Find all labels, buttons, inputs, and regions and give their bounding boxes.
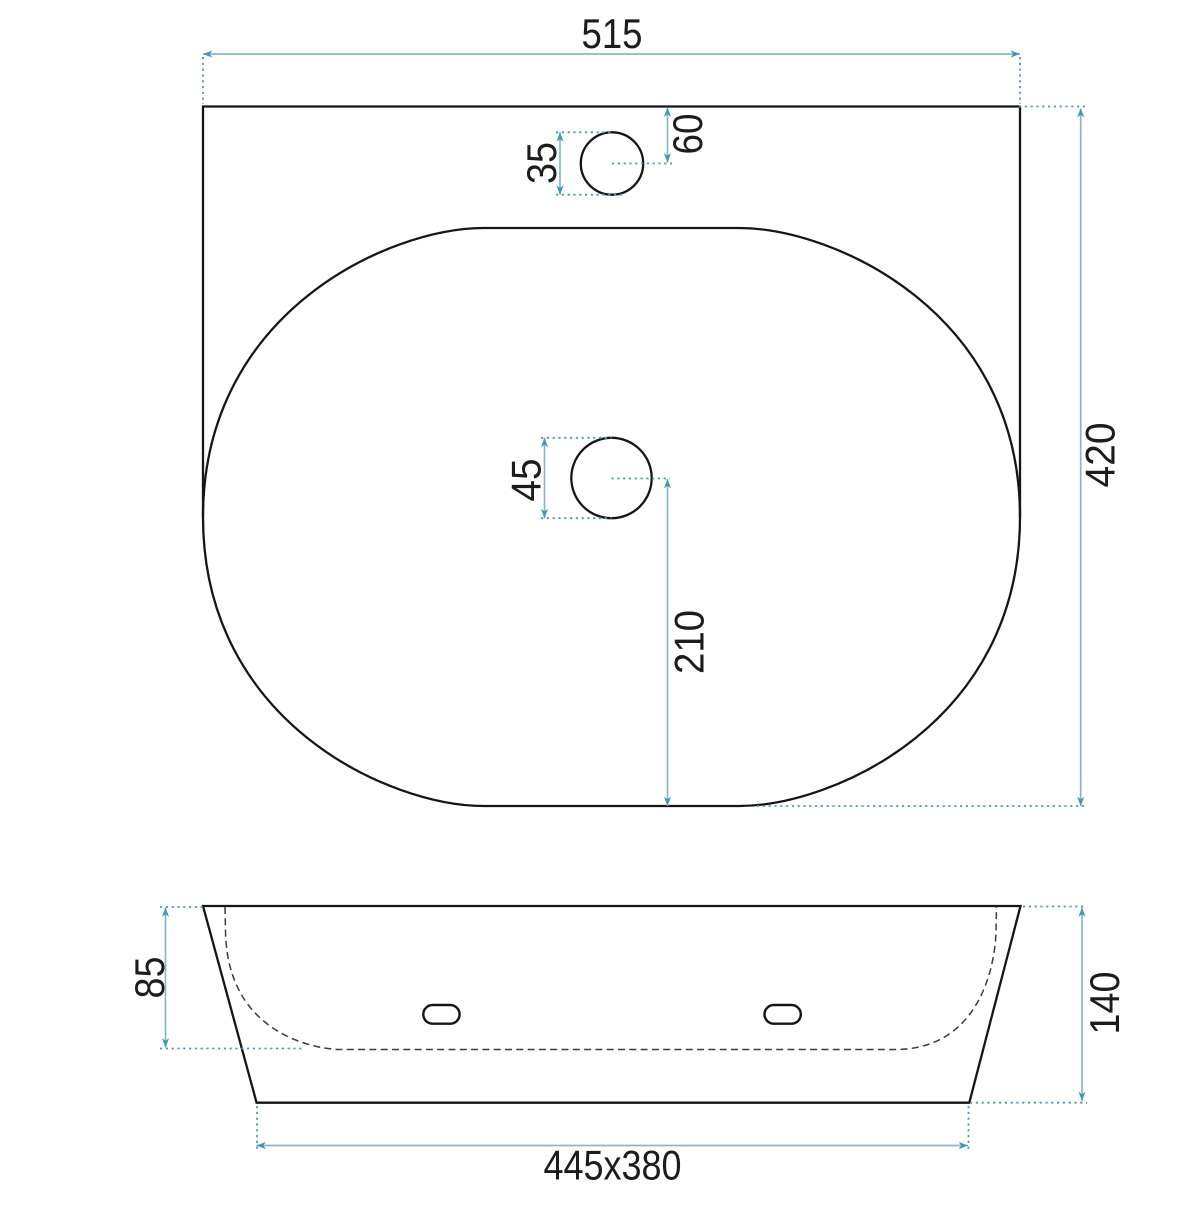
svg-text:60: 60 xyxy=(664,114,711,155)
svg-text:515: 515 xyxy=(582,10,643,57)
svg-text:85: 85 xyxy=(126,957,173,999)
svg-text:445x380: 445x380 xyxy=(544,1142,682,1189)
svg-text:35: 35 xyxy=(518,142,565,184)
svg-text:420: 420 xyxy=(1077,423,1124,488)
svg-text:140: 140 xyxy=(1081,972,1128,1035)
svg-text:45: 45 xyxy=(503,459,550,502)
svg-text:210: 210 xyxy=(666,610,713,674)
